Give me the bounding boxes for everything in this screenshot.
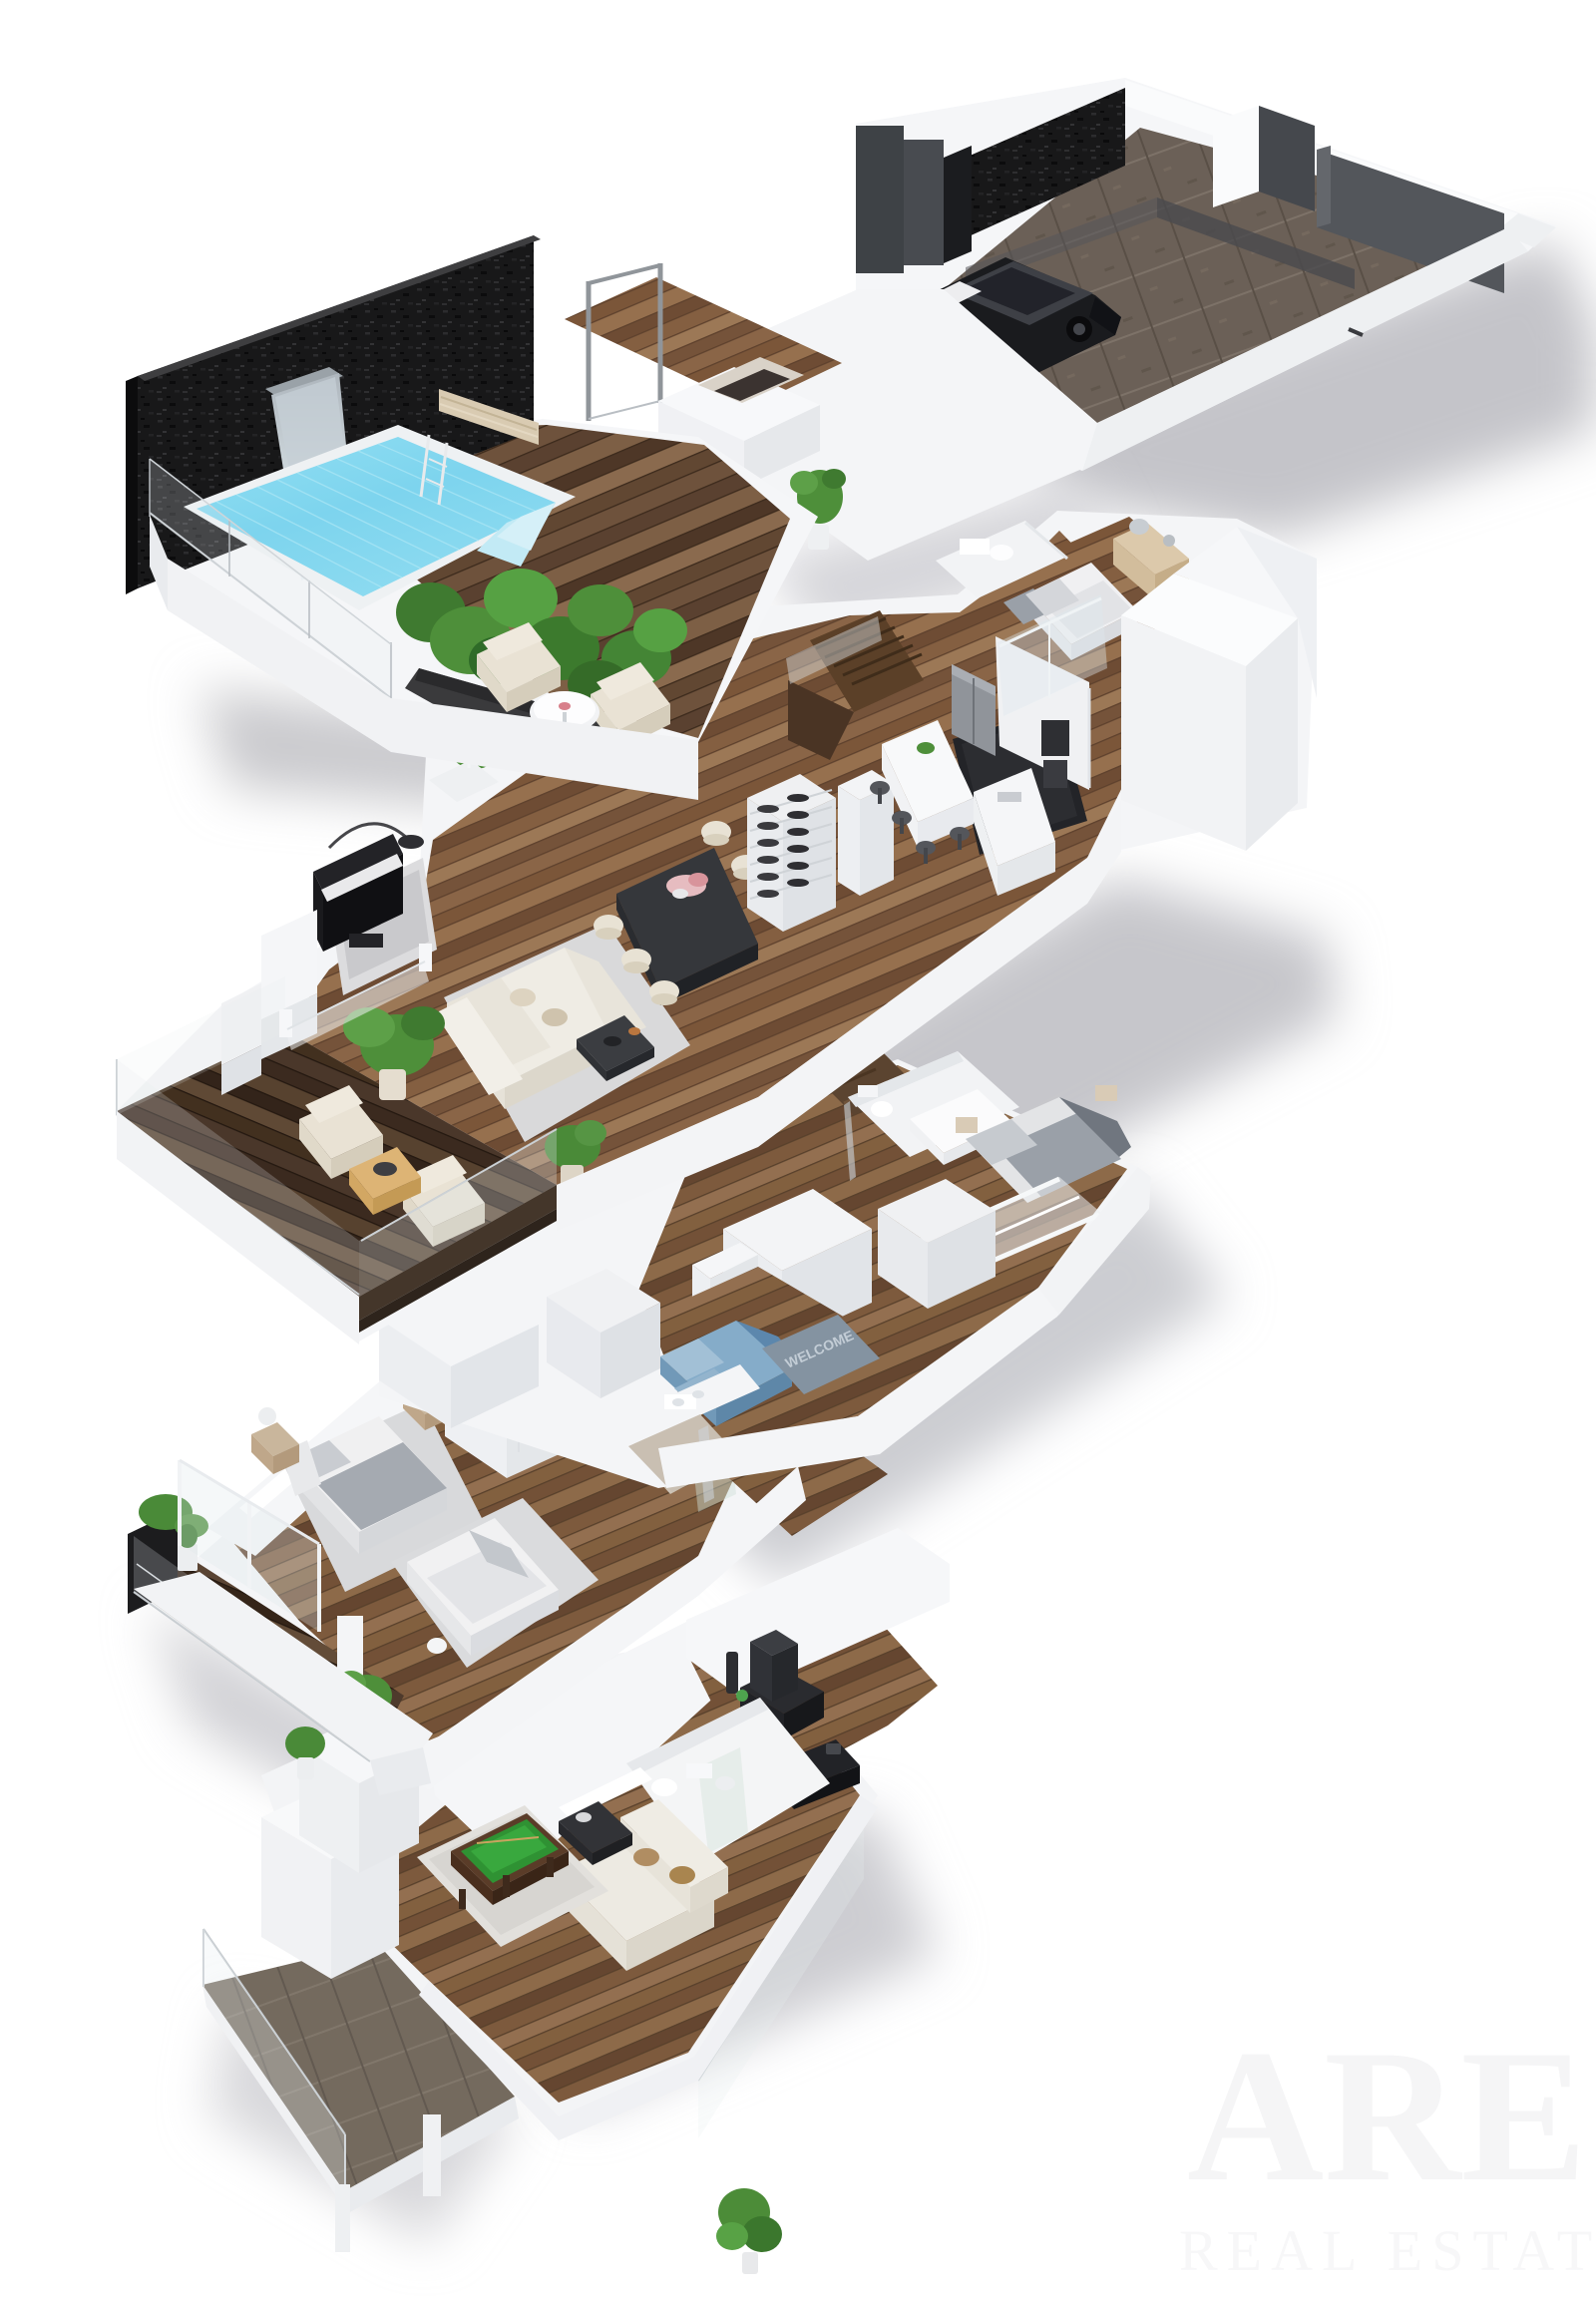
svg-text:REAL ESTATE: REAL ESTATE [1179, 2218, 1596, 2283]
svg-text:ARE: ARE [1187, 2012, 1587, 2221]
